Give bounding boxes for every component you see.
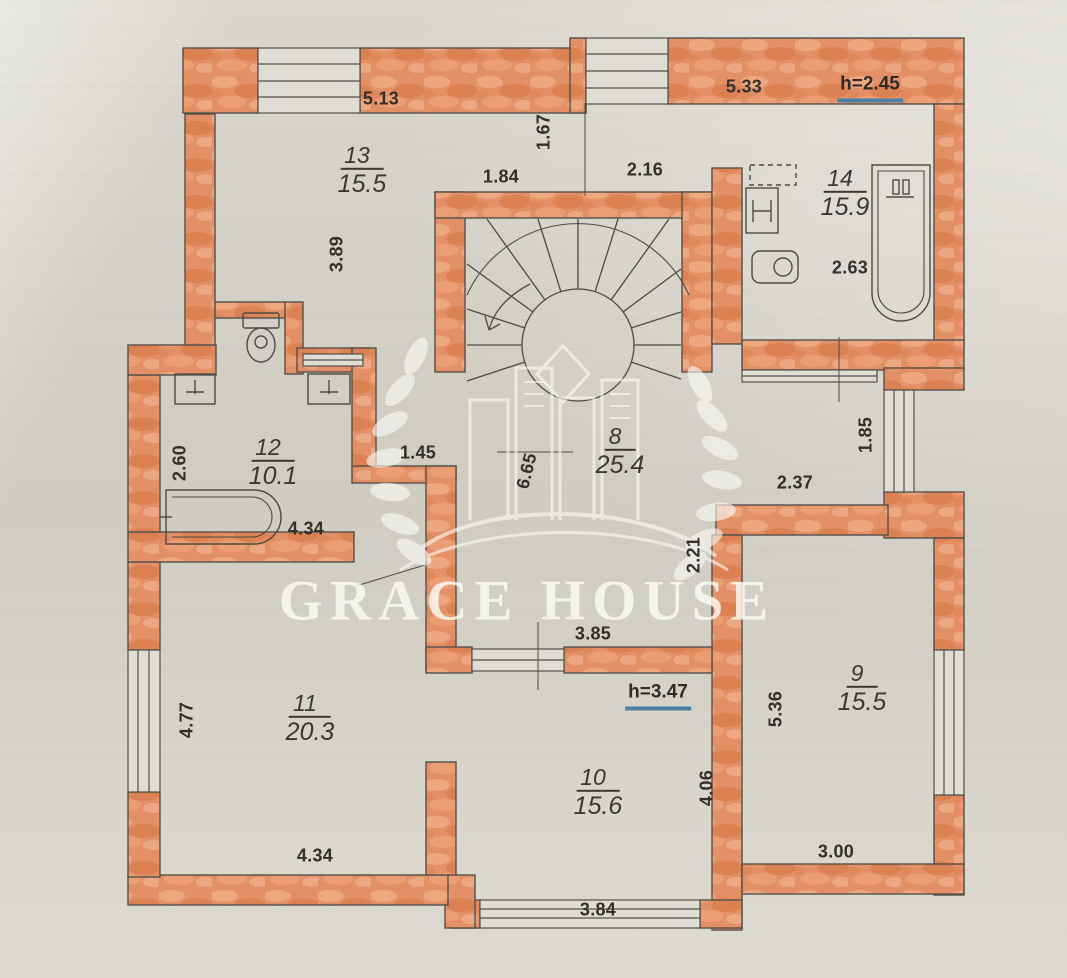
- watermark-text: GRACE HOUSE: [279, 569, 776, 634]
- window-left-room11: [128, 650, 160, 792]
- sink-symbol-left: [175, 374, 215, 404]
- dim-2-60: 2.60: [170, 445, 191, 481]
- window-top-right: [586, 38, 668, 104]
- room-number: 10: [576, 765, 620, 792]
- room-area: 10.1: [249, 463, 298, 489]
- spiral-staircase: [467, 219, 689, 401]
- vent-shaft: [303, 354, 363, 366]
- room-number: 11: [289, 691, 331, 718]
- room-area: 25.4: [596, 452, 645, 478]
- room-number: 9: [847, 661, 878, 688]
- room-label-13: 13 15.5: [338, 143, 387, 197]
- room-label-8: 8 25.4: [596, 424, 645, 478]
- room-number: 14: [823, 166, 867, 193]
- room-area: 15.5: [838, 689, 887, 715]
- window-right-room9: [934, 650, 964, 795]
- dim-3-84: 3.84: [580, 900, 616, 921]
- dim-3-85: 3.85: [575, 624, 611, 645]
- dim-4-34-room11: 4.34: [297, 846, 333, 867]
- room-label-14: 14 15.9: [821, 166, 870, 220]
- window-right-hall: [884, 390, 914, 492]
- opening-room10-top: [472, 649, 564, 671]
- room-area: 15.5: [338, 171, 387, 197]
- opening-room14-bottom: [742, 370, 877, 382]
- room-number: 12: [251, 435, 295, 462]
- room-label-11: 11 20.3: [286, 691, 335, 745]
- dim-1-45: 1.45: [400, 443, 436, 464]
- dim-1-67: 1.67: [534, 114, 555, 150]
- washer-symbol-room14: [752, 251, 798, 283]
- dim-5-13: 5.13: [363, 89, 399, 110]
- height-note-3-47: h=3.47: [625, 682, 691, 711]
- dim-5-33: 5.33: [726, 77, 762, 98]
- appliance-symbol-room14: [750, 165, 796, 185]
- stair-direction-arrow: [485, 284, 530, 330]
- height-note-2-45: h=2.45: [837, 74, 903, 103]
- toilet-symbol-room12: [243, 313, 279, 362]
- room-number: 8: [605, 424, 636, 451]
- dim-2-16: 2.16: [627, 160, 663, 181]
- floor-plan-scan: GRACE HOUSE 13 15.5 14 15.9 8 25.4 12 10…: [0, 0, 1067, 978]
- room-number: 13: [340, 143, 384, 170]
- dim-1-85: 1.85: [856, 417, 877, 453]
- room-label-12: 12 10.1: [249, 435, 298, 489]
- room-area: 20.3: [286, 719, 335, 745]
- dim-4-06: 4.06: [697, 770, 718, 806]
- dim-1-84: 1.84: [483, 167, 519, 188]
- room-area: 15.9: [821, 194, 870, 220]
- bathtub-symbol-room14: [872, 165, 930, 321]
- dim-5-36: 5.36: [766, 691, 787, 727]
- window-top-left: [258, 48, 360, 113]
- dim-4-77: 4.77: [177, 702, 198, 738]
- dim-2-21: 2.21: [684, 537, 705, 573]
- dim-3-89: 3.89: [327, 236, 348, 272]
- dim-3-00: 3.00: [818, 842, 854, 863]
- room-label-10: 10 15.6: [574, 765, 623, 819]
- sink-symbol-room14: [746, 188, 778, 233]
- sink-symbol-right: [308, 374, 350, 404]
- room-label-9: 9 15.5: [838, 661, 887, 715]
- room-area: 15.6: [574, 793, 623, 819]
- dim-2-37: 2.37: [777, 473, 813, 494]
- dim-2-63: 2.63: [832, 258, 868, 279]
- dim-4-34-room12: 4.34: [288, 519, 324, 540]
